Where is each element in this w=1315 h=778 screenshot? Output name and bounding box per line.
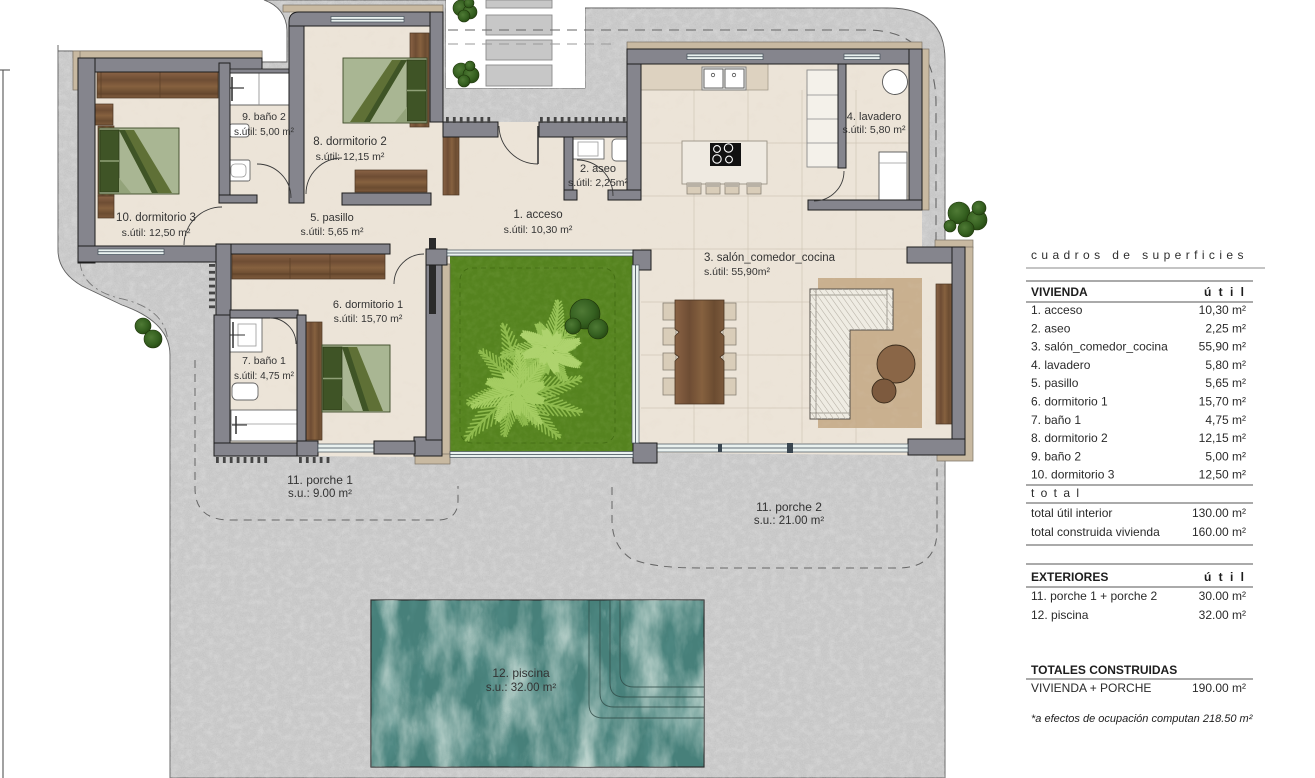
svg-text:4. lavadero: 4. lavadero [847,111,901,123]
svg-text:11. porche 2: 11. porche 2 [756,500,822,514]
svg-text:s.útil: 5,65 m²: s.útil: 5,65 m² [300,226,364,238]
svg-text:1. acceso: 1. acceso [513,209,562,221]
svg-text:7. baño 1: 7. baño 1 [1031,413,1081,427]
svg-text:s.útil: 2,25m²: s.útil: 2,25m² [568,177,629,189]
svg-text:s.útil: 12,50 m²: s.útil: 12,50 m² [122,227,191,239]
svg-text:8. dormitorio 2: 8. dormitorio 2 [1031,431,1108,445]
svg-text:2. aseo: 2. aseo [1031,321,1071,335]
svg-text:10. dormitorio 3: 10. dormitorio 3 [116,212,196,224]
svg-text:5,00 m²: 5,00 m² [1205,449,1246,463]
svg-text:total útil interior: total útil interior [1031,506,1112,520]
svg-text:30.00 m²: 30.00 m² [1199,589,1246,603]
svg-text:10. dormitorio 3: 10. dormitorio 3 [1031,468,1115,482]
svg-text:9. baño 2: 9. baño 2 [1031,449,1081,463]
svg-text:s.u.: 21.00 m²: s.u.: 21.00 m² [754,515,824,527]
svg-text:cuadros de superficies: cuadros de superficies [1031,248,1248,262]
svg-text:7. baño 1: 7. baño 1 [242,355,286,367]
svg-text:ú t i l: ú t i l [1204,285,1246,299]
svg-text:3. salón_comedor_cocina: 3. salón_comedor_cocina [704,252,836,264]
svg-text:*a efectos de ocupación comput: *a efectos de ocupación computan 218.50 … [1031,713,1253,725]
svg-text:s.útil: 55,90m²: s.útil: 55,90m² [704,266,770,278]
svg-text:TOTALES CONSTRUIDAS: TOTALES CONSTRUIDAS [1031,663,1177,677]
svg-text:4. lavadero: 4. lavadero [1031,358,1091,372]
svg-text:5,80 m²: 5,80 m² [1205,358,1246,372]
svg-text:s.u.: 32.00 m²: s.u.: 32.00 m² [486,682,556,694]
svg-text:s.útil: 10,30 m²: s.útil: 10,30 m² [504,224,573,236]
svg-text:5. pasillo: 5. pasillo [1031,376,1079,390]
svg-text:s.útil: 5,80 m²: s.útil: 5,80 m² [842,124,906,136]
svg-text:12. piscina: 12. piscina [492,666,550,680]
svg-text:9. baño 2: 9. baño 2 [242,111,286,123]
svg-text:11. porche 1: 11. porche 1 [287,473,353,487]
svg-text:10,30 m²: 10,30 m² [1199,303,1246,317]
svg-text:6. dormitorio 1: 6. dormitorio 1 [333,299,403,311]
svg-text:15,70 m²: 15,70 m² [1199,395,1246,409]
svg-text:130.00 m²: 130.00 m² [1192,506,1246,520]
svg-text:ú t i l: ú t i l [1204,570,1246,584]
svg-text:s.útil: 15,70 m²: s.útil: 15,70 m² [334,313,403,325]
svg-text:8. dormitorio 2: 8. dormitorio 2 [313,136,387,148]
svg-text:s.u.: 9.00 m²: s.u.: 9.00 m² [288,488,352,500]
svg-text:EXTERIORES: EXTERIORES [1031,570,1108,584]
svg-text:3. salón_comedor_cocina: 3. salón_comedor_cocina [1031,340,1168,354]
svg-text:s.útil: 4,75 m²: s.útil: 4,75 m² [234,371,295,382]
svg-text:5,65 m²: 5,65 m² [1205,376,1246,390]
svg-text:6. dormitorio 1: 6. dormitorio 1 [1031,395,1108,409]
svg-text:2. aseo: 2. aseo [580,163,616,175]
svg-text:4,75 m²: 4,75 m² [1205,413,1246,427]
svg-text:5. pasillo: 5. pasillo [310,212,353,224]
svg-text:32.00 m²: 32.00 m² [1199,608,1246,622]
svg-text:s.útil: 12,15 m²: s.útil: 12,15 m² [316,151,385,163]
svg-text:t o t a l: t o t a l [1031,486,1081,500]
svg-text:160.00 m²: 160.00 m² [1192,525,1246,539]
svg-text:190.00 m²: 190.00 m² [1192,681,1246,695]
svg-text:12,50 m²: 12,50 m² [1199,468,1246,482]
svg-text:s.útil: 5,00 m²: s.útil: 5,00 m² [234,127,295,138]
svg-text:2,25 m²: 2,25 m² [1205,321,1246,335]
svg-text:VIVIENDA + PORCHE: VIVIENDA + PORCHE [1031,681,1151,695]
svg-text:55,90 m²: 55,90 m² [1199,340,1246,354]
svg-text:12. piscina: 12. piscina [1031,608,1089,622]
svg-text:VIVIENDA: VIVIENDA [1031,285,1088,299]
svg-text:total construida vivienda: total construida vivienda [1031,525,1160,539]
svg-text:12,15 m²: 12,15 m² [1199,431,1246,445]
svg-text:11. porche 1 + porche 2: 11. porche 1 + porche 2 [1031,589,1158,603]
svg-text:1. acceso: 1. acceso [1031,303,1083,317]
